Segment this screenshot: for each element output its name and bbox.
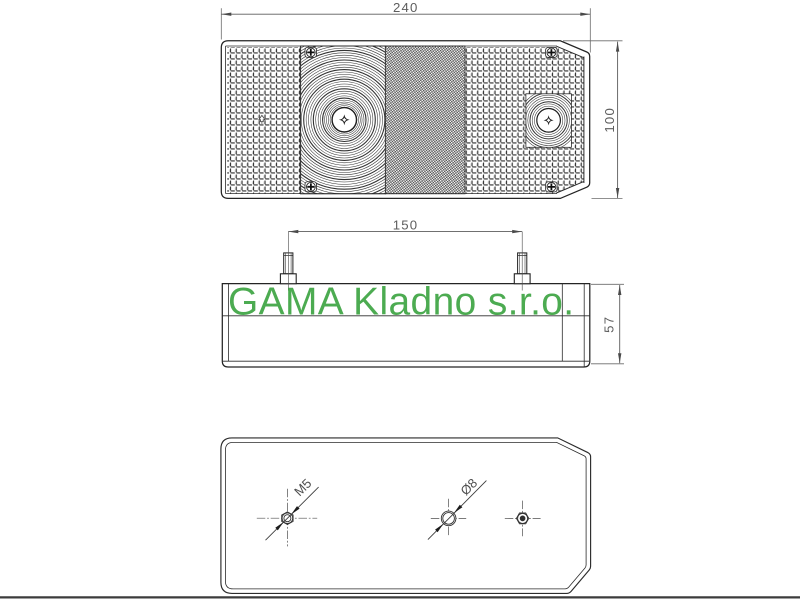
svg-text:150: 150	[393, 218, 419, 233]
svg-text:57: 57	[602, 316, 617, 333]
svg-text:GAMA Kladno s.r.o.: GAMA Kladno s.r.o.	[228, 281, 575, 324]
svg-text:100: 100	[602, 107, 617, 133]
svg-text:240: 240	[393, 0, 419, 15]
